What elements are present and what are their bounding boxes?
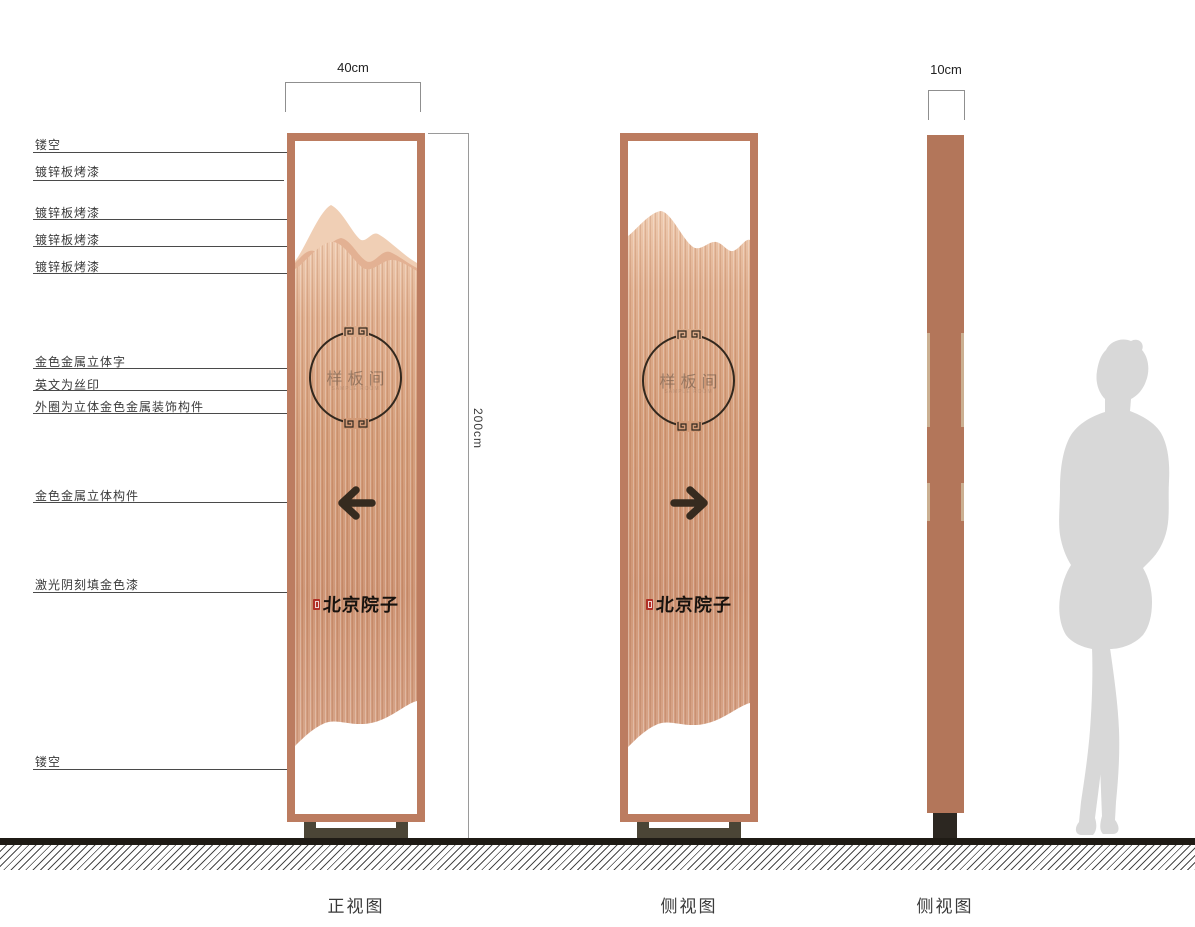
- front-view-sign: 样板间 SAMPLE ROOM 北京院子: [287, 133, 425, 822]
- base-bar: [641, 828, 737, 838]
- leader-line: [33, 152, 307, 153]
- brand-calligraphy: 北京院子: [628, 591, 750, 617]
- dimension-200cm: 200cm: [471, 408, 485, 449]
- base-foot: [729, 822, 741, 838]
- profile-relief-strip: [961, 483, 964, 521]
- signage-spec-drawing: 镂空 镀锌板烤漆 镀锌板烤漆 镀锌板烤漆 镀锌板烤漆 金色金属立体字 英文为丝印…: [0, 0, 1195, 927]
- leader-line: [33, 273, 299, 274]
- view-label-side-2: 侧视图: [876, 892, 1014, 917]
- callout-hollow-top: 镂空: [35, 136, 61, 153]
- circle-ornament: 样板间 SAMPLE ROOM: [642, 334, 735, 427]
- brushed-texture: [628, 211, 750, 747]
- brand-calligraphy: 北京院子: [295, 591, 417, 617]
- front-panel-artwork: [295, 141, 417, 814]
- room-name-english: SAMPLE ROOM: [644, 389, 733, 395]
- view-label-side-1: 侧视图: [620, 892, 758, 917]
- leader-line: [33, 180, 284, 181]
- human-silhouette: [1022, 336, 1182, 838]
- brand-text: 北京院子: [655, 591, 732, 617]
- base-foot: [396, 822, 408, 838]
- arrow-right-icon: [670, 484, 712, 522]
- side-sign-base: [637, 822, 741, 838]
- leader-line: [33, 368, 326, 369]
- side-panel-artwork: [628, 141, 750, 814]
- brand-text: 北京院子: [322, 591, 399, 617]
- dimension-tick-200cm: [428, 133, 468, 134]
- side-profile-column: [927, 135, 964, 813]
- ground-line: [0, 838, 1195, 845]
- profile-relief-strip: [927, 333, 930, 427]
- dimension-10cm: 10cm: [910, 62, 982, 77]
- leader-line: [33, 246, 316, 247]
- ground-hatching: [0, 845, 1195, 870]
- callout-hollow-bottom: 镂空: [35, 753, 61, 770]
- profile-relief-strip: [927, 483, 930, 521]
- meander-ornament-icon: [676, 421, 702, 432]
- meander-ornament-icon: [676, 329, 702, 340]
- base-bar: [308, 828, 404, 838]
- front-sign-base: [304, 822, 408, 838]
- profile-relief-strip: [961, 333, 964, 427]
- red-seal-icon: [646, 599, 653, 610]
- view-label-front: 正视图: [287, 892, 425, 917]
- meander-ornament-icon: [343, 418, 369, 429]
- dimension-line-200cm: [468, 133, 469, 838]
- dimension-bracket-40cm: [285, 82, 421, 112]
- circle-ornament: 样板间 SAMPLE ROOM: [309, 331, 402, 424]
- leader-line: [33, 219, 330, 220]
- side-view-sign: 样板间 SAMPLE ROOM 北京院子: [620, 133, 758, 822]
- red-seal-icon: [313, 599, 320, 610]
- dimension-bracket-10cm: [928, 90, 965, 120]
- leader-line: [33, 413, 316, 414]
- meander-ornament-icon: [343, 326, 369, 337]
- arrow-left-icon: [334, 484, 376, 522]
- callout-galvanized-1: 镀锌板烤漆: [35, 163, 100, 180]
- dimension-40cm: 40cm: [285, 60, 421, 75]
- callout-laser-engrave: 激光阴刻填金色漆: [35, 576, 139, 593]
- side-profile-base: [933, 813, 957, 838]
- leader-line: [33, 769, 302, 770]
- room-name-english: SAMPLE ROOM: [311, 386, 400, 392]
